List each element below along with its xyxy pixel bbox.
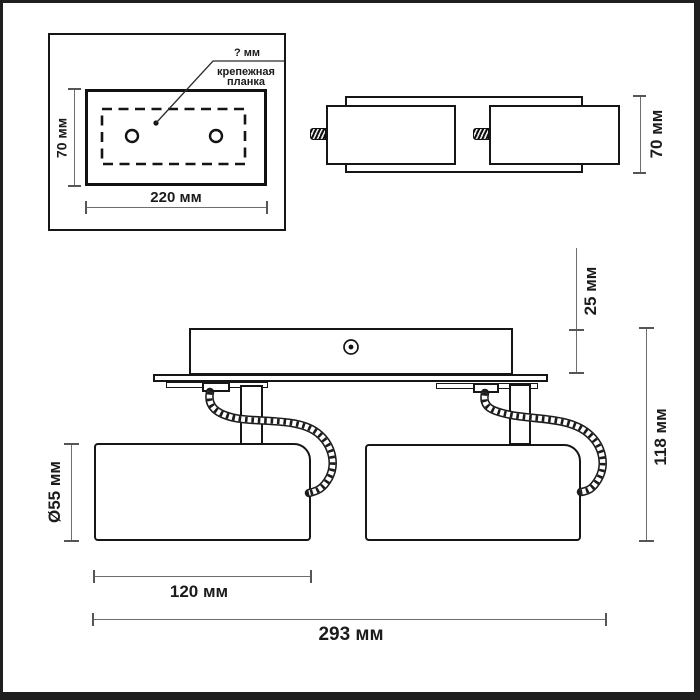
detail-height-dim-tick-bottom: [68, 185, 81, 187]
sideview-height-dim-tick-top: [633, 95, 646, 97]
overall-height-dim-tick-bottom: [639, 540, 654, 542]
callout-dim-label: ? мм: [234, 48, 260, 60]
right-stem: [509, 384, 531, 445]
canopy-depth-dim-label: 25 мм: [582, 267, 600, 316]
overall-width-dim-tick-right: [605, 613, 607, 626]
canopy-depth-dim-tick-top: [569, 329, 584, 331]
overall-width-dim-line: [93, 619, 606, 620]
left-pivot-block: [202, 382, 230, 392]
mounting-bar-label-line2: планка: [227, 77, 265, 89]
shade-length-dim-line: [94, 576, 311, 577]
detail-width-dim-tick-right: [266, 201, 268, 214]
overall-width-dim-tick-left: [92, 613, 94, 626]
mounting-detail-inset-box: ? мм крепежная планка 70 мм 220 мм: [48, 33, 286, 231]
canopy-box: [189, 328, 513, 375]
canopy-depth-dim-tick-bottom: [569, 372, 584, 374]
sideview-height-dim-tick-bottom: [633, 172, 646, 174]
sideview-right-shade: [489, 105, 620, 165]
ceiling-strip: [153, 374, 548, 382]
shade-diameter-dim-line: [71, 444, 72, 541]
left-shade: [94, 443, 311, 541]
overall-height-dim-label: 118 мм: [652, 408, 670, 465]
left-stem: [240, 385, 263, 445]
shade-length-dim-tick-left: [93, 570, 95, 583]
overall-width-dim-label: 293 мм: [318, 625, 383, 645]
detail-width-dim-line: [86, 207, 267, 208]
shade-diameter-dim-tick-top: [64, 443, 79, 445]
detail-height-dim-tick-top: [68, 88, 81, 90]
right-pivot-block: [473, 383, 499, 393]
right-shade: [365, 444, 581, 541]
detail-width-dim-label: 220 мм: [150, 190, 201, 206]
sideview-left-shade: [326, 105, 456, 165]
sideview-left-knob: [310, 128, 326, 140]
shade-diameter-dim-tick-bottom: [64, 540, 79, 542]
detail-height-dim-line: [74, 89, 75, 186]
sideview-height-dim-label: 70 мм: [648, 110, 666, 159]
technical-drawing-sheet: ? мм крепежная планка 70 мм 220 мм 70 мм…: [0, 0, 700, 700]
sideview-height-dim-line: [640, 96, 641, 173]
shade-diameter-dim-label: Ø55 мм: [46, 461, 64, 523]
mounting-plate-outline: [85, 89, 267, 186]
shade-length-dim-tick-right: [310, 570, 312, 583]
overall-height-dim-line: [646, 328, 647, 541]
shade-length-dim-label: 120 мм: [170, 583, 228, 601]
detail-height-dim-label: 70 мм: [55, 118, 70, 158]
detail-width-dim-tick-left: [85, 201, 87, 214]
sideview-right-knob: [473, 128, 489, 140]
overall-height-dim-tick-top: [639, 327, 654, 329]
canopy-depth-dim-line: [576, 248, 577, 374]
